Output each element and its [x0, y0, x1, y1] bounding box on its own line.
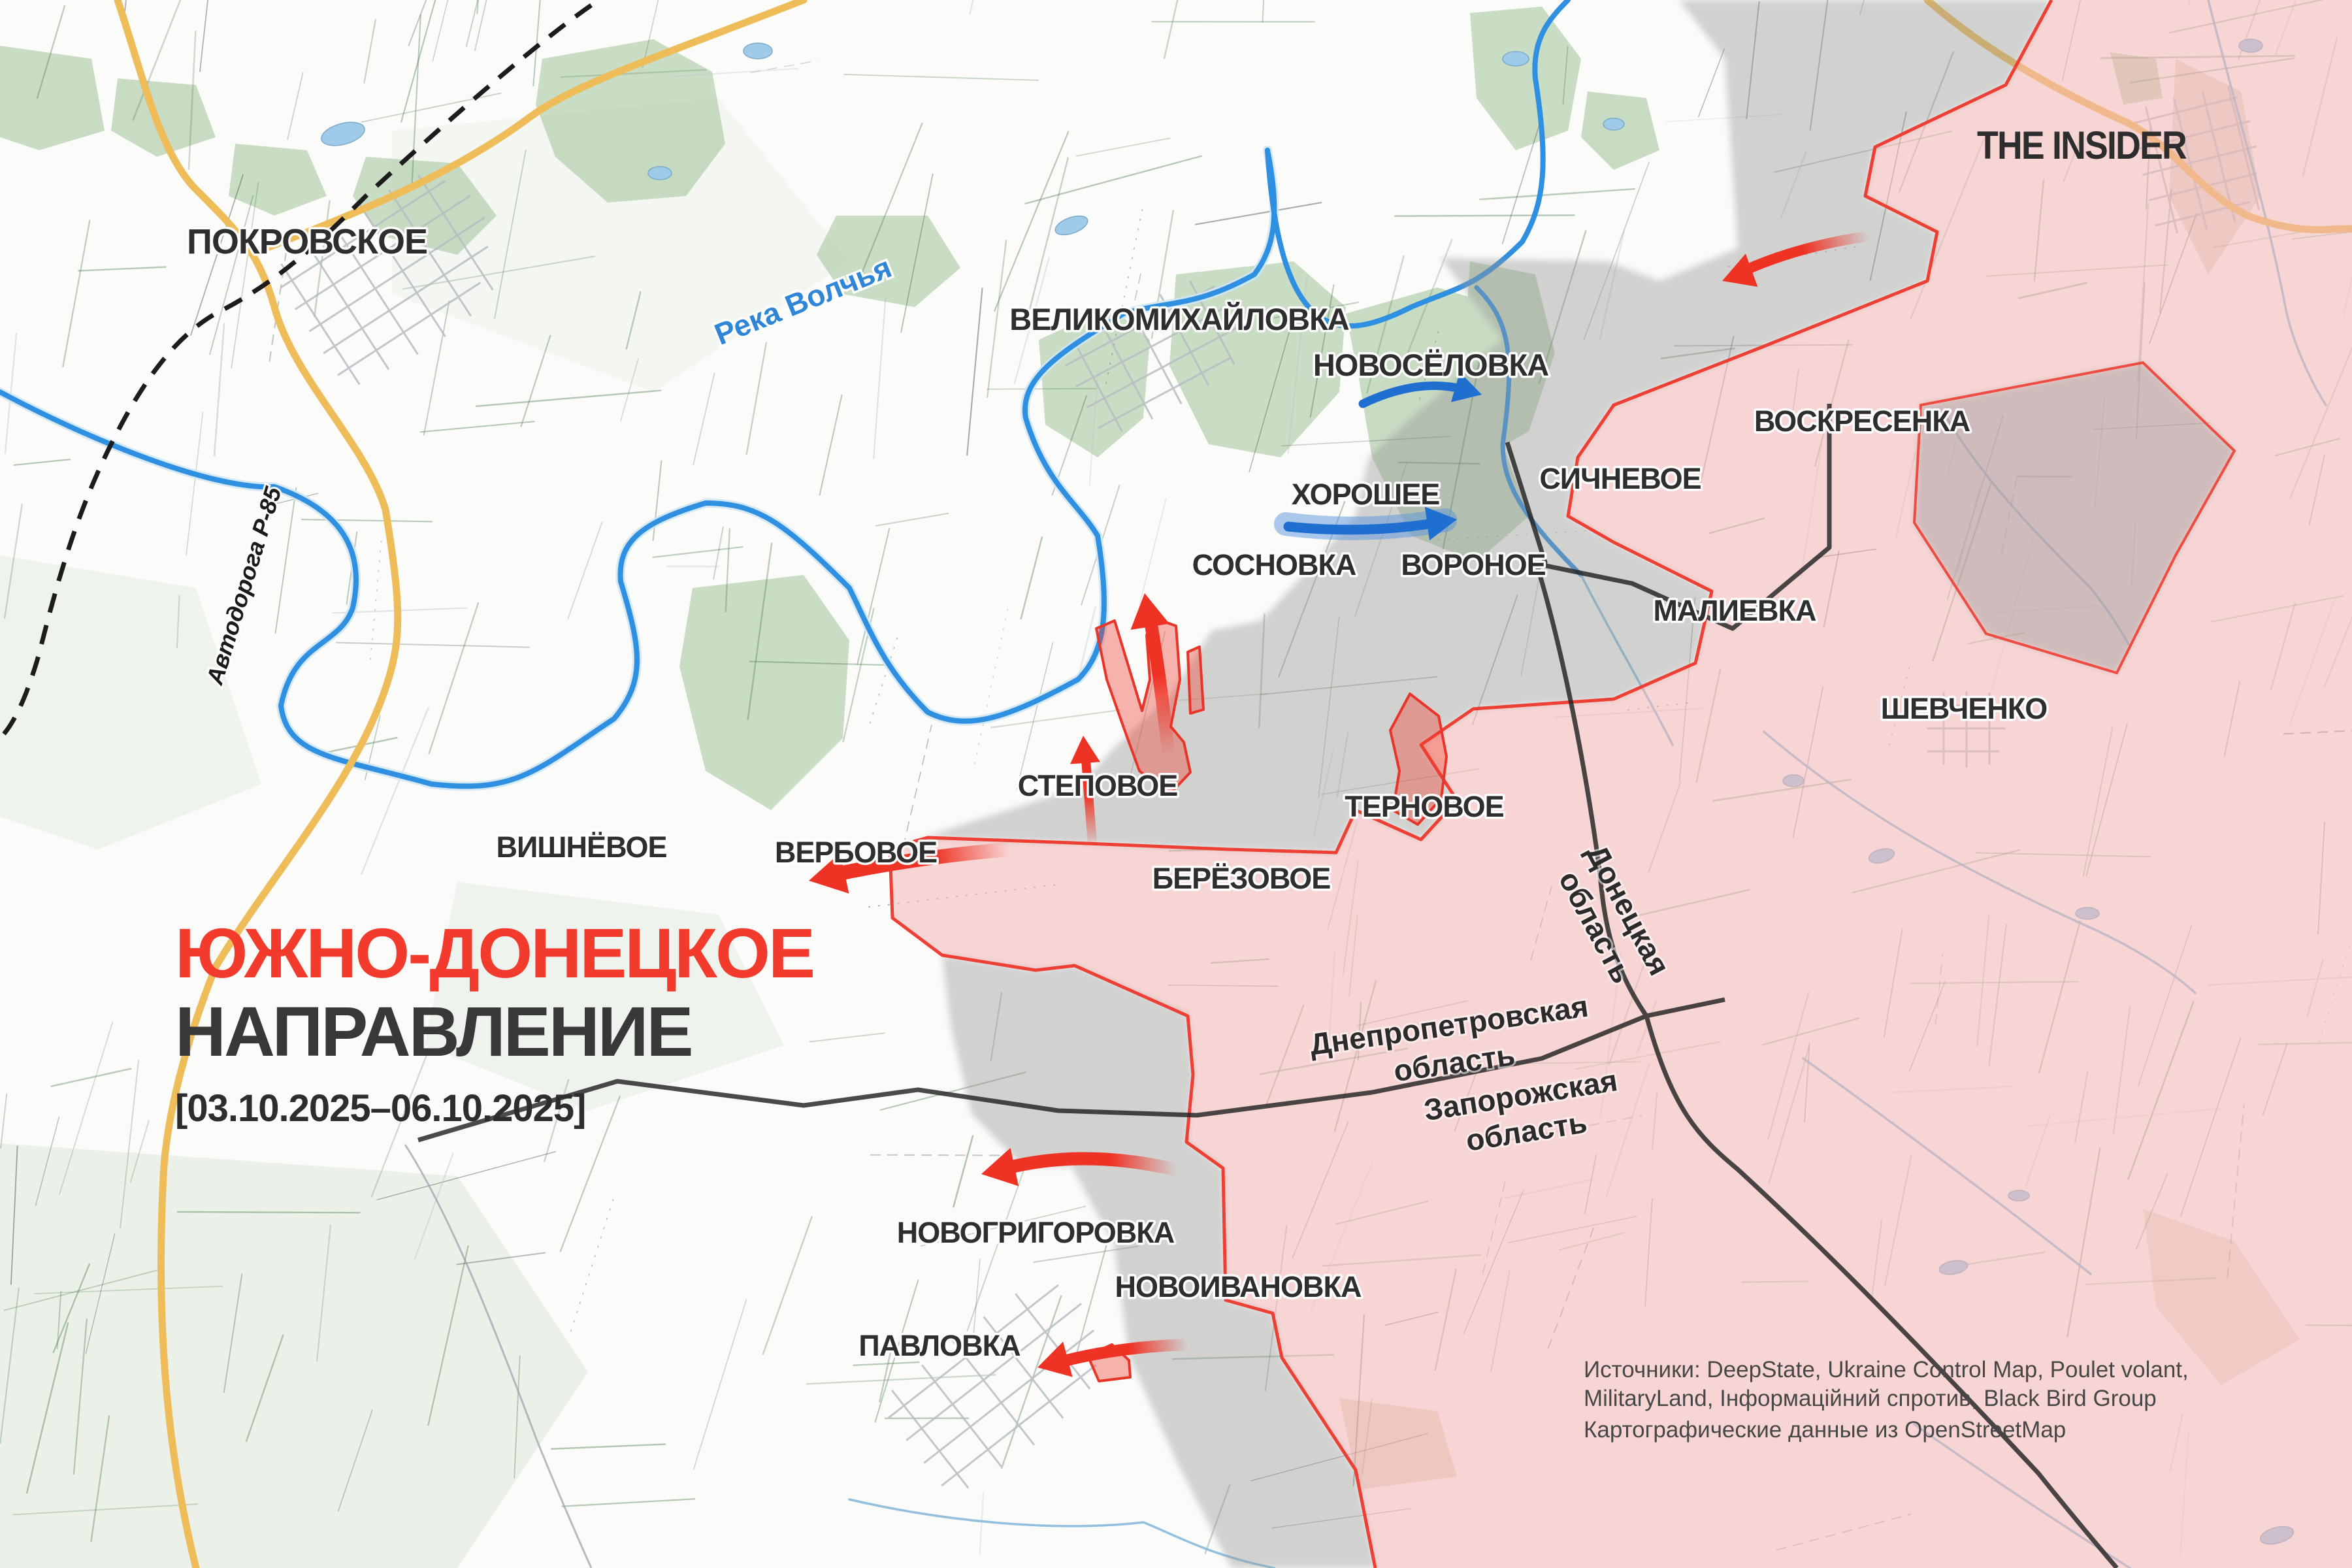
label-sichnevoe: СИЧНЕВОЕ: [1539, 462, 1701, 495]
sources-line1: Источники: DeepState, Ukraine Control Ma…: [1584, 1357, 2189, 1382]
label-ternovoe: ТЕРНОВОЕ: [1345, 790, 1503, 823]
label-pokrovskoe: ПОКРОВСКОЕ: [187, 222, 427, 261]
salient-sosnovka-sliver: [1188, 647, 1203, 713]
label-shevchenko: ШЕВЧЕНКО: [1881, 692, 2048, 725]
label-novogrigorovka: НОВОГРИГОРОВКА: [897, 1216, 1175, 1249]
label-velikomikhaylovka: ВЕЛИКОМИХАЙЛОВКА: [1009, 302, 1348, 336]
war-map: ПОКРОВСКОЕ ВЕЛИКОМИХАЙЛОВКА НОВОСЁЛОВКА …: [0, 0, 2352, 1568]
map-title-line1: ЮЖНО-ДОНЕЦКОЕ: [175, 913, 813, 992]
label-novosyolovka: НОВОСЁЛОВКА: [1313, 348, 1548, 382]
label-vishnyovoe: ВИШНЁВОЕ: [496, 830, 666, 864]
the-insider-logo: THE INSIDER: [1977, 123, 2187, 167]
sources-line3: Картографические данные из OpenStreetMap: [1584, 1417, 2066, 1443]
map-title-line2: НАПРАВЛЕНИЕ: [175, 992, 692, 1071]
label-road-r85: Автодорога Р-85: [201, 483, 287, 688]
label-voskresenka: ВОСКРЕСЕНКА: [1754, 404, 1970, 438]
label-khoroshee: ХОРОШЕЕ: [1292, 478, 1440, 511]
label-pavlovka: ПАВЛОВКА: [858, 1329, 1021, 1362]
label-sosnovka: СОСНОВКА: [1192, 548, 1356, 581]
red-arrowhead-sosnovka: [1125, 590, 1169, 630]
label-beryozovoe: БЕРЁЗОВОЕ: [1152, 862, 1330, 895]
red-arrowhead-pavlovka: [1033, 1342, 1073, 1386]
sources-line2: MilitaryLand, Інформаційний спротив, Bla…: [1584, 1386, 2157, 1411]
label-malievka: МАЛИЕВКА: [1654, 594, 1816, 627]
label-novoivanovka: НОВОИВАНОВКА: [1115, 1270, 1362, 1303]
red-arrowhead-stepovoe: [1068, 734, 1100, 764]
label-verbovoe: ВЕРБОВОЕ: [775, 836, 937, 869]
map-date-range: [03.10.2025–06.10.2025]: [175, 1087, 585, 1130]
label-stepovoe: СТЕПОВОЕ: [1018, 769, 1178, 802]
label-voronoe: ВОРОНОЕ: [1401, 548, 1545, 581]
